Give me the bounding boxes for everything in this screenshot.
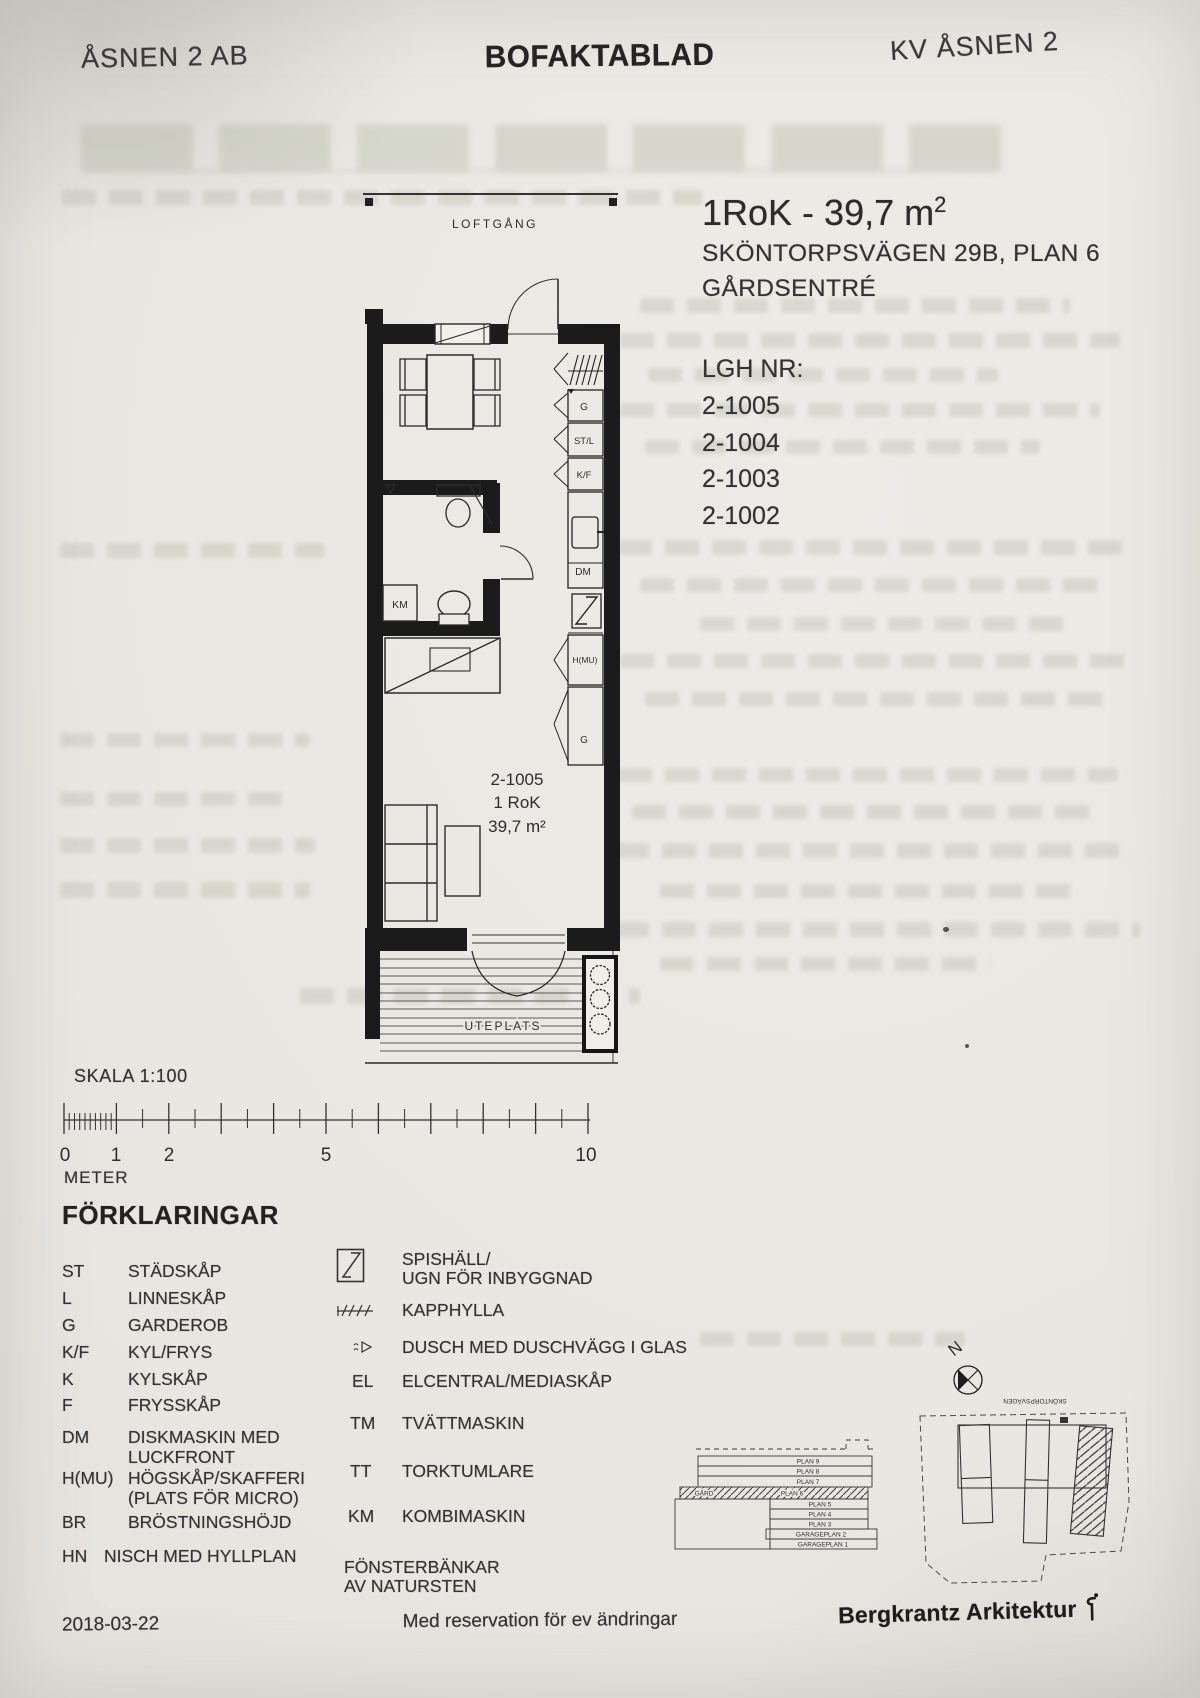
unit-area: 39,7 m²	[488, 817, 546, 836]
ink-speck	[965, 1044, 969, 1048]
ghost-line	[60, 882, 310, 898]
north-compass-icon: N	[944, 1337, 982, 1394]
legend-abbr: KM	[348, 1506, 374, 1527]
legend-abbr: H(MU)	[62, 1468, 128, 1489]
garderob-label: G	[580, 402, 588, 413]
section-dashed-roofline	[696, 1440, 875, 1449]
header-company: ÅSNEN 2 AB	[81, 40, 249, 75]
ghost-line	[60, 792, 295, 806]
ghost-line	[660, 957, 990, 971]
toilet	[438, 591, 470, 617]
legend-label: DISKMASKIN MED	[128, 1427, 280, 1447]
apartment-address: SKÖNTORPSVÄGEN 29B, PLAN 6	[702, 240, 1100, 268]
terrace-door-arc	[517, 951, 565, 996]
legend-label: KAPPHYLLA	[402, 1300, 504, 1321]
legend-title: FÖRKLARINGAR	[62, 1200, 279, 1231]
section-yard-label: GÅRD	[695, 1489, 714, 1498]
page-title: BOFAKTABLAD	[485, 37, 715, 75]
section-floor-label: GARAGEPLAN 2	[796, 1532, 847, 1539]
legend-label: KOMBIMASKIN	[402, 1506, 526, 1527]
cabinet-door-marks	[554, 353, 568, 761]
ghost-line	[620, 654, 1125, 668]
lgh-label: LGH NR:	[702, 351, 1100, 388]
loftgang-label: LOFTGÅNG	[452, 216, 538, 231]
legend-abbr: G	[62, 1315, 128, 1336]
ghost-line	[60, 838, 315, 853]
legend-row: LLINNESKÅP	[62, 1288, 226, 1309]
legend-abbr: L	[62, 1288, 128, 1309]
site-building-wing	[959, 1425, 992, 1524]
loftgang-edge	[363, 194, 618, 206]
section-floor-label: PLAN 7	[797, 1479, 820, 1486]
legend-abbr: K/F	[62, 1342, 128, 1363]
legend-abbr: BR	[62, 1512, 128, 1533]
section-floor-label: GARAGEPLAN 1	[798, 1542, 849, 1549]
stad-linne-label: ST/L	[574, 436, 594, 447]
ruler-number: 0	[60, 1145, 71, 1166]
legend-abbr: ST	[62, 1261, 128, 1282]
section-floor-label: PLAN 8	[797, 1469, 820, 1476]
header-block: KV ÅSNEN 2	[889, 26, 1060, 67]
legend-label: BRÖSTNINGSHÖJD	[128, 1512, 291, 1532]
legend-label: FRYSSKÅP	[128, 1395, 221, 1415]
architect-signature: Bergkrantz Arkitektur	[820, 1592, 1101, 1630]
legend-label: FÖNSTERBÄNKAR	[344, 1558, 500, 1577]
legend-label: LINNESKÅP	[128, 1288, 226, 1308]
legend-row: DMDISKMASKIN MEDLUCKFRONT	[62, 1427, 280, 1468]
lgh-number: 2-1003	[702, 461, 1100, 498]
north-label: N	[944, 1337, 965, 1360]
scale-ruler: 0 1 2 5 10	[58, 1098, 603, 1170]
ghost-line	[645, 692, 1115, 706]
furniture	[385, 638, 500, 921]
legend-label: KYL/FRYS	[128, 1342, 212, 1362]
legend-label: AV NATURSTEN	[344, 1577, 477, 1596]
legend-label: TORKTUMLARE	[402, 1461, 534, 1482]
legend-abbr: HN	[62, 1546, 104, 1567]
fold-bed	[385, 638, 500, 693]
ghost-line	[618, 540, 1133, 555]
coffee-table	[445, 826, 480, 896]
kapphylla-symbol	[568, 355, 603, 394]
apartment-type-area: 1RoK - 39,7 m2	[702, 192, 1100, 234]
floor-plan: LOFTGÅNG BR 780	[320, 183, 640, 1075]
lgh-number: 2-1005	[702, 388, 1100, 425]
ghost-line	[60, 733, 310, 747]
lgh-number: 2-1002	[702, 498, 1100, 535]
legend-label: HÖGSKÅP/SKAFFERI	[128, 1468, 305, 1488]
entry-door	[508, 279, 558, 334]
legend-label: TVÄTTMASKIN	[402, 1413, 525, 1434]
sink	[572, 517, 598, 548]
km-label: KM	[392, 599, 408, 611]
lgh-number: 2-1004	[702, 425, 1100, 462]
apartment-entrance: GÅRDSENTRÉ	[702, 275, 1100, 303]
ghost-title	[81, 124, 1001, 173]
legend-abbr: TT	[350, 1461, 371, 1482]
legend-abbr: DM	[62, 1427, 128, 1448]
legend-label: GARDEROB	[128, 1315, 228, 1335]
legend-row: KKYLSKÅP	[62, 1369, 208, 1390]
legend-label: SPISHÄLL/	[402, 1250, 491, 1269]
uteplats-label: UTEPLATS	[464, 1019, 541, 1033]
legend-row: BRBRÖSTNINGSHÖJD	[62, 1512, 291, 1533]
legend-row: STSTÄDSKÅP	[62, 1261, 221, 1282]
legend-row: H(MU)HÖGSKÅP/SKAFFERI(PLATS FÖR MICRO)	[62, 1468, 305, 1509]
section-floor-label: PLAN 9	[797, 1459, 820, 1466]
bergkrantz-logo-icon	[1084, 1592, 1101, 1622]
unit-type: 1 RoK	[493, 793, 541, 812]
ghost-line	[700, 617, 1075, 631]
section-floor-label: PLAN 5	[809, 1502, 832, 1509]
stove-symbol	[572, 594, 601, 628]
legend-label: STÄDSKÅP	[128, 1261, 221, 1281]
sofa	[385, 805, 437, 921]
ghost-line	[60, 543, 325, 558]
legend-label: ELCENTRAL/MEDIASKÅP	[402, 1371, 612, 1392]
site-building-wing	[1023, 1420, 1049, 1544]
walls	[365, 309, 620, 1039]
site-plan: N SKÖNTORPSVÄGEN	[898, 1332, 1150, 1592]
disclaimer: Med reservation för ev ändringar	[375, 1609, 705, 1634]
unit-label: 2-1005 1 RoK 39,7 m²	[488, 770, 546, 836]
legend-label: DUSCH MED DUSCHVÄGG I GLAS	[402, 1337, 687, 1358]
architect-name: Bergkrantz Arkitektur	[838, 1596, 1077, 1629]
legend-abbr: EL	[352, 1371, 373, 1392]
shower-icon	[352, 1339, 374, 1355]
legend-abbr: K	[62, 1369, 128, 1390]
legend-label: UGN FÖR INBYGGNAD	[402, 1269, 593, 1288]
ruler-number: 1	[111, 1145, 122, 1166]
section-floor-label: PLAN 4	[809, 1512, 832, 1519]
ghost-line	[640, 578, 1110, 592]
date: 2018-03-22	[62, 1613, 160, 1636]
legend-label: (PLATS FÖR MICRO)	[128, 1488, 305, 1508]
terrace	[365, 935, 618, 1063]
ghost-line	[615, 843, 1130, 858]
ghost-line	[618, 768, 1118, 782]
terrace-door-arc	[472, 951, 517, 996]
section-ground-block	[675, 1499, 770, 1549]
legend-abbr: F	[62, 1395, 128, 1416]
garderob2-label: G	[580, 735, 588, 746]
site-building-current	[1070, 1426, 1112, 1536]
legend-label: NISCH MED HYLLPLAN	[104, 1546, 297, 1566]
legend-label: KYLSKÅP	[128, 1369, 208, 1389]
legend-row: HNNISCH MED HYLLPLAN	[62, 1546, 297, 1567]
planter	[584, 957, 616, 1051]
window	[435, 324, 490, 344]
ghost-line	[660, 884, 1080, 898]
diskmaskin-label: DM	[575, 567, 591, 578]
legend-label: LUCKFRONT	[128, 1447, 280, 1467]
ruler-numbers: 0 1 2 5 10	[60, 1145, 597, 1166]
bofaktablad-page: ÅSNEN 2 AB BOFAKTABLAD KV ÅSNEN 2 1RoK -…	[0, 0, 1200, 1698]
stove-icon	[336, 1248, 366, 1284]
ruler-number: 2	[164, 1145, 175, 1166]
legend-row: K/FKYL/FRYS	[62, 1342, 212, 1363]
scale-label: SKALA 1:100	[74, 1066, 188, 1087]
legend-row: FFRYSSKÅP	[62, 1395, 221, 1416]
section-floor-label: PLAN 6	[781, 1491, 804, 1498]
sqm-superscript: 2	[934, 192, 946, 217]
kylfrys-label: K/F	[577, 470, 592, 481]
ink-speck	[943, 927, 949, 932]
kapphylla-icon	[336, 1302, 374, 1319]
legend-row: GGARDEROB	[62, 1315, 228, 1336]
scale-unit: METER	[64, 1168, 129, 1188]
unit-number: 2-1005	[491, 770, 544, 789]
building-section: PLAN 9 PLAN 8 PLAN 7 GÅRD PLAN 6 PLAN 5 …	[640, 1432, 890, 1554]
bathroom-door-arc	[500, 546, 533, 579]
ruler-number: 5	[321, 1145, 332, 1166]
ghost-line	[632, 805, 1102, 819]
legend-abbr: TM	[350, 1413, 375, 1434]
section-floor-label: PLAN 3	[809, 1522, 832, 1529]
hogskap-label: H(MU)	[572, 655, 597, 665]
ghost-line	[615, 922, 1140, 937]
ruler-ticks	[64, 1103, 590, 1134]
dining-set	[400, 355, 500, 429]
kitchen-cabinets	[554, 353, 604, 765]
apartment-info: 1RoK - 39,7 m2 SKÖNTORPSVÄGEN 29B, PLAN …	[702, 192, 1100, 535]
street-label: SKÖNTORPSVÄGEN	[1003, 1397, 1067, 1405]
ruler-number: 10	[575, 1145, 596, 1166]
